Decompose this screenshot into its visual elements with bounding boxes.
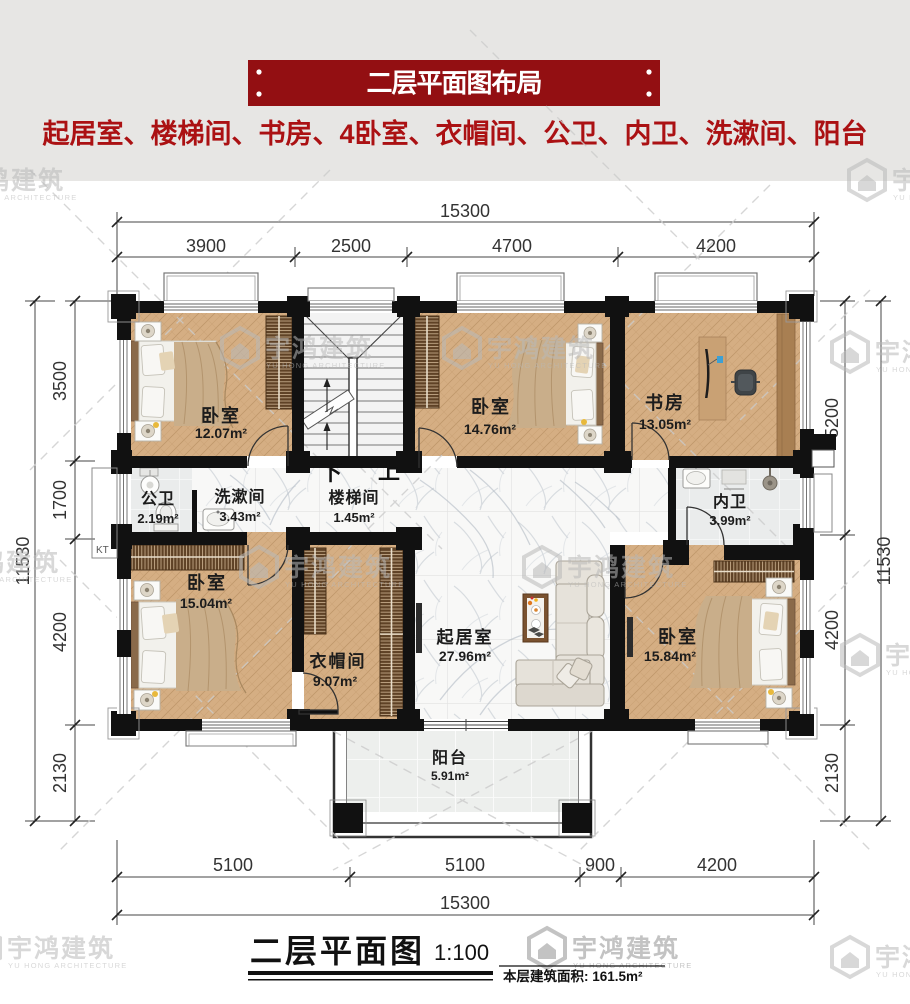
svg-text:洗漱间: 洗漱间 (214, 487, 265, 506)
svg-text:衣帽间: 衣帽间 (310, 651, 367, 671)
svg-text:上: 上 (378, 459, 400, 484)
svg-text:3.99m²: 3.99m² (709, 513, 751, 528)
svg-text:公卫: 公卫 (141, 490, 175, 508)
svg-text:二层平面图布局: 二层平面图布局 (366, 68, 541, 98)
svg-text:本层建筑面积: 161.5m²: 本层建筑面积: 161.5m² (503, 968, 643, 984)
svg-text:KT: KT (96, 545, 109, 556)
svg-text:3900: 3900 (186, 236, 226, 256)
svg-text:900: 900 (585, 855, 615, 875)
svg-text:15300: 15300 (440, 893, 490, 913)
svg-text:15.04m²: 15.04m² (180, 595, 232, 611)
svg-text:内卫: 内卫 (713, 492, 747, 511)
svg-text:卧室: 卧室 (471, 396, 511, 417)
svg-text:2500: 2500 (331, 236, 371, 256)
svg-text:下: 下 (320, 460, 342, 485)
svg-text:13.05m²: 13.05m² (639, 416, 691, 432)
svg-text:1:100: 1:100 (434, 940, 489, 965)
svg-text:4200: 4200 (697, 855, 737, 875)
svg-text:起居室: 起居室 (436, 627, 494, 647)
svg-text:9.07m²: 9.07m² (313, 673, 358, 689)
svg-text:15.84m²: 15.84m² (644, 648, 696, 664)
svg-text:5.91m²: 5.91m² (431, 769, 469, 783)
svg-text:二层平面图: 二层平面图 (250, 933, 425, 969)
svg-text:卧室: 卧室 (201, 405, 241, 426)
svg-text:书房: 书房 (645, 392, 685, 413)
svg-text:3500: 3500 (50, 361, 70, 401)
svg-text:4700: 4700 (492, 236, 532, 256)
svg-text:卧室: 卧室 (658, 626, 698, 647)
svg-text:卧室: 卧室 (187, 572, 227, 593)
svg-text:4200: 4200 (50, 612, 70, 652)
svg-text:5100: 5100 (445, 855, 485, 875)
svg-text:2130: 2130 (50, 753, 70, 793)
svg-text:2130: 2130 (822, 753, 842, 793)
svg-text:12.07m²: 12.07m² (195, 425, 247, 441)
svg-text:阳台: 阳台 (432, 748, 468, 767)
svg-text:2.19m²: 2.19m² (137, 511, 179, 526)
svg-text:1700: 1700 (50, 480, 70, 520)
svg-text:1.45m²: 1.45m² (333, 510, 375, 525)
svg-text:27.96m²: 27.96m² (439, 648, 491, 664)
svg-text:4200: 4200 (822, 610, 842, 650)
svg-text:3.43m²: 3.43m² (219, 509, 261, 524)
svg-text:起居室、楼梯间、书房、4卧室、衣帽间、公卫、内卫、洗漱间、阳: 起居室、楼梯间、书房、4卧室、衣帽间、公卫、内卫、洗漱间、阳台 (42, 118, 867, 149)
svg-text:14.76m²: 14.76m² (464, 421, 516, 437)
svg-text:楼梯间: 楼梯间 (328, 488, 379, 507)
svg-text:5200: 5200 (822, 398, 842, 438)
svg-text:5100: 5100 (213, 855, 253, 875)
svg-text:15300: 15300 (440, 201, 490, 221)
svg-text:宇鸿建筑: 宇鸿建筑 (572, 934, 680, 963)
svg-text:11530: 11530 (874, 537, 894, 586)
